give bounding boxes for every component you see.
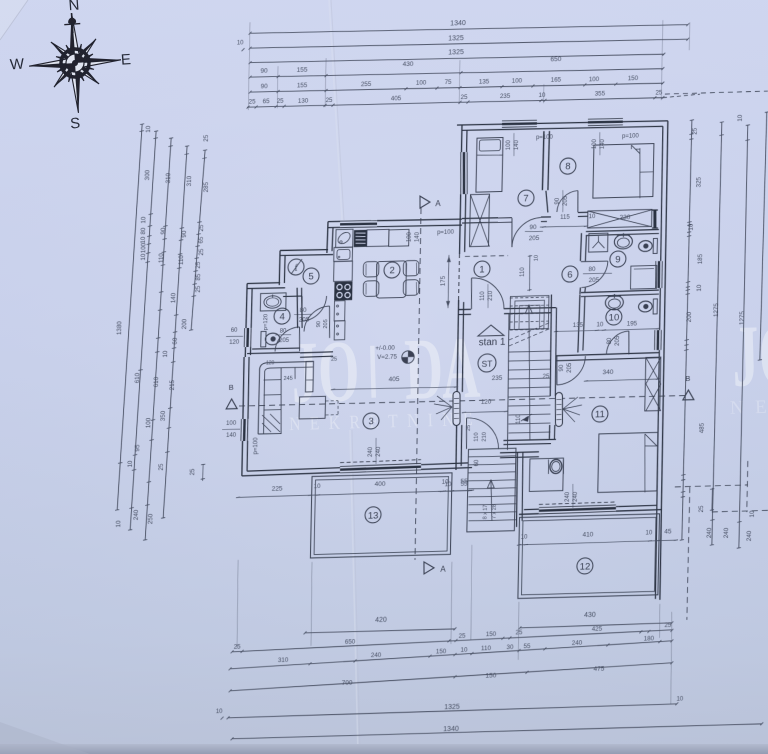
svg-text:p=100: p=100 (622, 134, 640, 140)
svg-text:650: 650 (550, 56, 561, 63)
svg-text:25: 25 (190, 468, 196, 475)
svg-text:240: 240 (368, 446, 374, 457)
svg-text:110: 110 (178, 255, 185, 266)
svg-text:10: 10 (162, 350, 169, 358)
svg-text:610: 610 (153, 376, 160, 387)
svg-text:55: 55 (523, 643, 531, 650)
svg-text:stan 1: stan 1 (479, 337, 506, 349)
svg-text:195: 195 (627, 320, 638, 327)
svg-text:80: 80 (588, 266, 596, 273)
svg-text:2: 2 (389, 265, 395, 276)
svg-text:11: 11 (595, 409, 605, 420)
svg-text:13: 13 (368, 510, 379, 521)
svg-text:25: 25 (234, 644, 242, 651)
svg-text:p=100: p=100 (437, 230, 455, 236)
svg-text:45: 45 (664, 528, 672, 535)
svg-text:230: 230 (619, 214, 630, 221)
svg-text:80: 80 (607, 337, 613, 344)
svg-text:475: 475 (593, 666, 604, 673)
svg-text:S: S (70, 115, 81, 133)
svg-text:100: 100 (589, 76, 600, 83)
svg-text:10: 10 (534, 255, 540, 261)
svg-text:ST: ST (481, 358, 492, 368)
svg-text:355: 355 (595, 91, 606, 98)
svg-text:1325: 1325 (448, 49, 464, 56)
svg-text:90: 90 (529, 224, 537, 231)
svg-text:150: 150 (485, 672, 496, 679)
svg-text:100: 100 (416, 80, 427, 87)
svg-text:12: 12 (580, 561, 591, 572)
svg-text:240: 240 (573, 491, 579, 502)
svg-text:235: 235 (500, 93, 511, 100)
svg-text:10: 10 (737, 114, 744, 122)
svg-text:155: 155 (297, 66, 308, 73)
svg-text:90: 90 (160, 227, 167, 235)
svg-text:235: 235 (492, 375, 503, 382)
svg-text:5: 5 (308, 271, 314, 282)
svg-text:10: 10 (140, 236, 147, 244)
svg-text:100: 100 (226, 421, 237, 427)
svg-text:430: 430 (403, 61, 414, 68)
svg-text:215: 215 (169, 379, 176, 390)
svg-text:1325: 1325 (444, 704, 460, 711)
svg-text:300: 300 (144, 169, 151, 180)
svg-text:60: 60 (172, 337, 179, 345)
svg-text:430: 430 (584, 612, 596, 619)
svg-text:25: 25 (326, 97, 334, 104)
svg-text:405: 405 (389, 376, 400, 383)
svg-text:75: 75 (445, 79, 453, 86)
svg-text:240: 240 (746, 530, 753, 541)
svg-text:O: O (317, 321, 361, 420)
svg-text:1275: 1275 (713, 303, 720, 318)
svg-text:175: 175 (440, 275, 447, 286)
svg-text:155: 155 (297, 82, 308, 89)
svg-text:B: B (229, 383, 234, 392)
svg-text:200: 200 (181, 318, 188, 329)
svg-text:165: 165 (551, 77, 562, 84)
svg-text:410: 410 (582, 531, 593, 538)
svg-text:25: 25 (655, 89, 663, 96)
svg-text:700: 700 (342, 680, 353, 687)
svg-text:60: 60 (231, 328, 238, 334)
svg-text:225: 225 (272, 485, 283, 492)
svg-text:420: 420 (375, 617, 387, 624)
svg-text:140: 140 (514, 139, 520, 150)
svg-text:90: 90 (555, 197, 561, 204)
svg-text:90: 90 (181, 230, 188, 238)
svg-text:100: 100 (145, 417, 152, 428)
svg-text:100: 100 (512, 78, 523, 85)
svg-text:110: 110 (481, 645, 492, 652)
svg-text:350: 350 (160, 410, 167, 421)
svg-text:200: 200 (686, 311, 693, 322)
svg-text:310: 310 (278, 657, 289, 664)
svg-text:10: 10 (688, 223, 695, 231)
svg-text:10: 10 (521, 534, 528, 540)
svg-text:80: 80 (280, 328, 287, 334)
svg-text:25: 25 (195, 261, 202, 269)
svg-text:7: 7 (523, 193, 529, 204)
svg-text:250: 250 (147, 513, 154, 524)
svg-text:240: 240 (133, 509, 140, 520)
svg-text:180: 180 (644, 635, 655, 642)
svg-text:25: 25 (331, 357, 337, 363)
svg-text:25: 25 (249, 99, 257, 106)
svg-text:55: 55 (460, 478, 468, 485)
svg-text:10: 10 (589, 214, 596, 220)
svg-text:1325: 1325 (448, 35, 464, 42)
svg-text:150: 150 (628, 75, 639, 82)
svg-text:140: 140 (226, 433, 237, 439)
svg-text:240: 240 (723, 527, 730, 538)
svg-text:10: 10 (127, 460, 134, 468)
svg-text:110: 110 (516, 414, 522, 424)
svg-text:1380: 1380 (116, 321, 123, 336)
svg-text:240: 240 (376, 446, 382, 457)
svg-text:405: 405 (391, 95, 402, 102)
svg-text:D: D (403, 319, 444, 418)
svg-text:1340: 1340 (450, 20, 466, 27)
svg-text:285: 285 (203, 181, 210, 192)
svg-text:205: 205 (299, 316, 310, 323)
svg-text:425: 425 (592, 626, 603, 633)
svg-text:W: W (9, 56, 25, 74)
svg-text:210: 210 (482, 432, 488, 442)
svg-text:90: 90 (559, 364, 565, 371)
svg-text:10: 10 (538, 92, 546, 99)
svg-text:25: 25 (158, 463, 165, 471)
svg-text:10: 10 (676, 697, 683, 703)
svg-text:135: 135 (479, 78, 490, 85)
svg-text:10: 10 (696, 284, 703, 292)
svg-text:485: 485 (699, 422, 706, 433)
svg-text:25: 25 (198, 248, 205, 256)
svg-text:A: A (440, 318, 481, 417)
svg-text:205: 205 (615, 335, 621, 346)
svg-text:240: 240 (565, 491, 571, 502)
svg-text:10: 10 (645, 530, 652, 536)
svg-text:100: 100 (407, 231, 413, 242)
svg-text:B: B (685, 374, 690, 383)
svg-text:10: 10 (609, 312, 620, 323)
svg-text:240: 240 (572, 640, 583, 647)
svg-text:210: 210 (488, 290, 494, 301)
svg-text:1340: 1340 (443, 726, 459, 733)
svg-text:205: 205 (563, 195, 569, 206)
svg-text:10: 10 (460, 647, 468, 654)
svg-text:9: 9 (615, 254, 621, 265)
svg-text:25: 25 (515, 629, 523, 636)
svg-text:400: 400 (375, 481, 386, 488)
svg-text:340: 340 (602, 369, 613, 376)
svg-text:110: 110 (158, 253, 165, 264)
svg-text:110: 110 (480, 291, 486, 301)
svg-text:8 x 17: 8 x 17 (483, 505, 489, 520)
svg-text:25: 25 (195, 285, 202, 293)
svg-text:25: 25 (198, 224, 205, 232)
svg-text:115: 115 (560, 215, 570, 221)
svg-text:60: 60 (474, 459, 480, 466)
svg-text:25: 25 (277, 98, 285, 105)
svg-text:150: 150 (486, 631, 497, 638)
svg-text:25: 25 (203, 134, 210, 142)
svg-text:310: 310 (165, 172, 172, 183)
svg-text:25: 25 (466, 425, 472, 431)
svg-text:240: 240 (706, 527, 713, 538)
svg-text:7 x 28: 7 x 28 (492, 504, 498, 519)
svg-text:310: 310 (186, 175, 193, 186)
svg-text:80: 80 (140, 227, 147, 235)
svg-text:p=120: p=120 (263, 314, 269, 330)
svg-text:10: 10 (314, 484, 321, 490)
svg-text:p=100: p=100 (536, 135, 554, 141)
svg-text:80: 80 (300, 307, 308, 314)
svg-text:90: 90 (260, 68, 268, 75)
svg-text:10: 10 (115, 520, 122, 528)
svg-text:100: 100 (506, 139, 512, 150)
svg-text:25: 25 (698, 505, 705, 513)
svg-text:205: 205 (529, 235, 540, 242)
svg-text:10: 10 (237, 40, 244, 46)
svg-text:85: 85 (195, 273, 202, 281)
svg-text:25: 25 (459, 633, 467, 640)
svg-text:205: 205 (323, 319, 329, 328)
svg-text:100: 100 (592, 138, 598, 149)
svg-text:255: 255 (361, 81, 372, 88)
svg-text:185: 185 (697, 253, 704, 264)
svg-text:J: J (290, 322, 319, 421)
svg-text:A: A (435, 199, 441, 208)
svg-text:150: 150 (436, 648, 447, 655)
svg-text:140: 140 (170, 292, 177, 303)
svg-text:240: 240 (371, 652, 382, 659)
svg-text:135: 135 (573, 322, 584, 329)
svg-text:10: 10 (140, 216, 147, 224)
svg-text:120: 120 (229, 340, 240, 346)
svg-text:10: 10 (145, 125, 152, 133)
svg-text:3: 3 (368, 416, 374, 427)
svg-text:25: 25 (461, 94, 469, 101)
svg-text:110: 110 (520, 267, 526, 277)
svg-text:205: 205 (279, 338, 290, 344)
svg-text:1: 1 (479, 264, 485, 275)
svg-text:65: 65 (198, 236, 205, 244)
svg-text:N: N (68, 0, 80, 14)
svg-text:25: 25 (664, 622, 672, 629)
svg-text:10: 10 (442, 480, 449, 486)
svg-text:10: 10 (596, 321, 604, 328)
svg-text:8: 8 (565, 161, 571, 172)
svg-text:90: 90 (316, 321, 322, 327)
svg-text:10: 10 (216, 709, 223, 715)
svg-text:205: 205 (589, 277, 600, 284)
svg-text:110: 110 (474, 432, 480, 441)
svg-text:65: 65 (263, 98, 271, 105)
svg-text:E: E (120, 51, 131, 69)
svg-text:100: 100 (140, 242, 147, 253)
svg-text:90: 90 (261, 83, 269, 90)
svg-text:4: 4 (279, 311, 285, 322)
svg-text:245: 245 (283, 376, 292, 382)
svg-text:1275: 1275 (739, 311, 746, 326)
svg-text:120: 120 (481, 399, 492, 406)
svg-text:30: 30 (506, 644, 514, 651)
svg-text:+/-0.00: +/-0.00 (375, 345, 395, 353)
svg-text:650: 650 (345, 639, 356, 646)
svg-text:325: 325 (696, 176, 703, 187)
svg-text:205: 205 (567, 362, 573, 373)
svg-text:120: 120 (266, 360, 275, 366)
svg-text:610: 610 (134, 372, 141, 383)
svg-text:6: 6 (567, 269, 573, 280)
svg-text:140: 140 (600, 138, 606, 149)
svg-text:25: 25 (543, 374, 550, 380)
svg-text:95: 95 (134, 444, 141, 452)
svg-text:p=100: p=100 (253, 437, 259, 455)
svg-text:NE: NE (730, 396, 768, 418)
svg-text:V=2.75: V=2.75 (377, 354, 397, 362)
svg-text:f: f (294, 263, 297, 273)
svg-text:130: 130 (298, 97, 309, 104)
svg-text:A: A (440, 565, 446, 574)
svg-text:10: 10 (140, 253, 147, 261)
